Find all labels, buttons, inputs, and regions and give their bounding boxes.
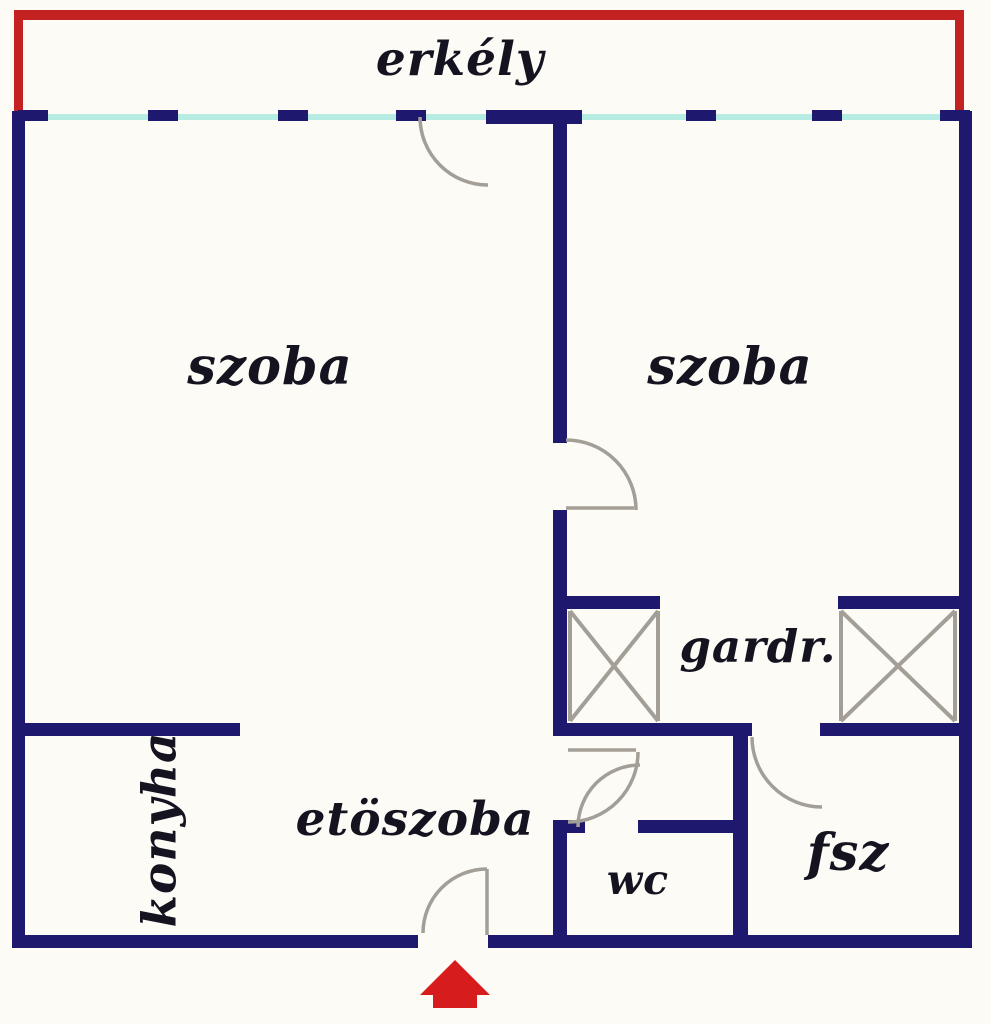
wall-central-upper — [553, 110, 567, 443]
wall-central-lower — [553, 820, 567, 948]
wall-wardrobe-right-box-top — [838, 596, 959, 609]
wall-central-middle — [553, 510, 567, 735]
wall-wardrobe-left-box-top — [565, 596, 660, 609]
room-label-wc: wc — [578, 860, 698, 901]
room-label-room-right: szoba — [610, 342, 850, 393]
wall-wardrobe-bottom-right — [820, 723, 959, 736]
wall-outer-right — [959, 111, 972, 948]
wall-outer-left — [12, 111, 25, 948]
entrance-marker-icon — [420, 960, 490, 1008]
wall-top-stub — [486, 110, 582, 124]
door-arc-balcony — [420, 117, 488, 185]
wall-wc-top-right — [638, 820, 733, 833]
room-label-kitchen: konyha — [58, 715, 262, 943]
door-arc-bathroom — [752, 737, 822, 807]
room-label-hallway: etöszoba — [280, 796, 550, 843]
wardrobe-x-left — [570, 611, 658, 721]
wall-wardrobe-bottom-left — [553, 723, 752, 736]
floorplan-canvas: erkély szoba szoba gardr. konyha etöszob… — [0, 0, 991, 1024]
room-label-room-left: szoba — [150, 342, 390, 393]
door-arc-entrance — [423, 869, 487, 933]
room-label-wardrobe: gardr. — [648, 624, 868, 669]
wall-wc-bathroom-divider — [733, 723, 748, 948]
room-label-balcony: erkély — [330, 36, 590, 83]
door-arc-bedrooms — [566, 440, 636, 510]
room-label-bathroom: fsz — [778, 828, 918, 879]
